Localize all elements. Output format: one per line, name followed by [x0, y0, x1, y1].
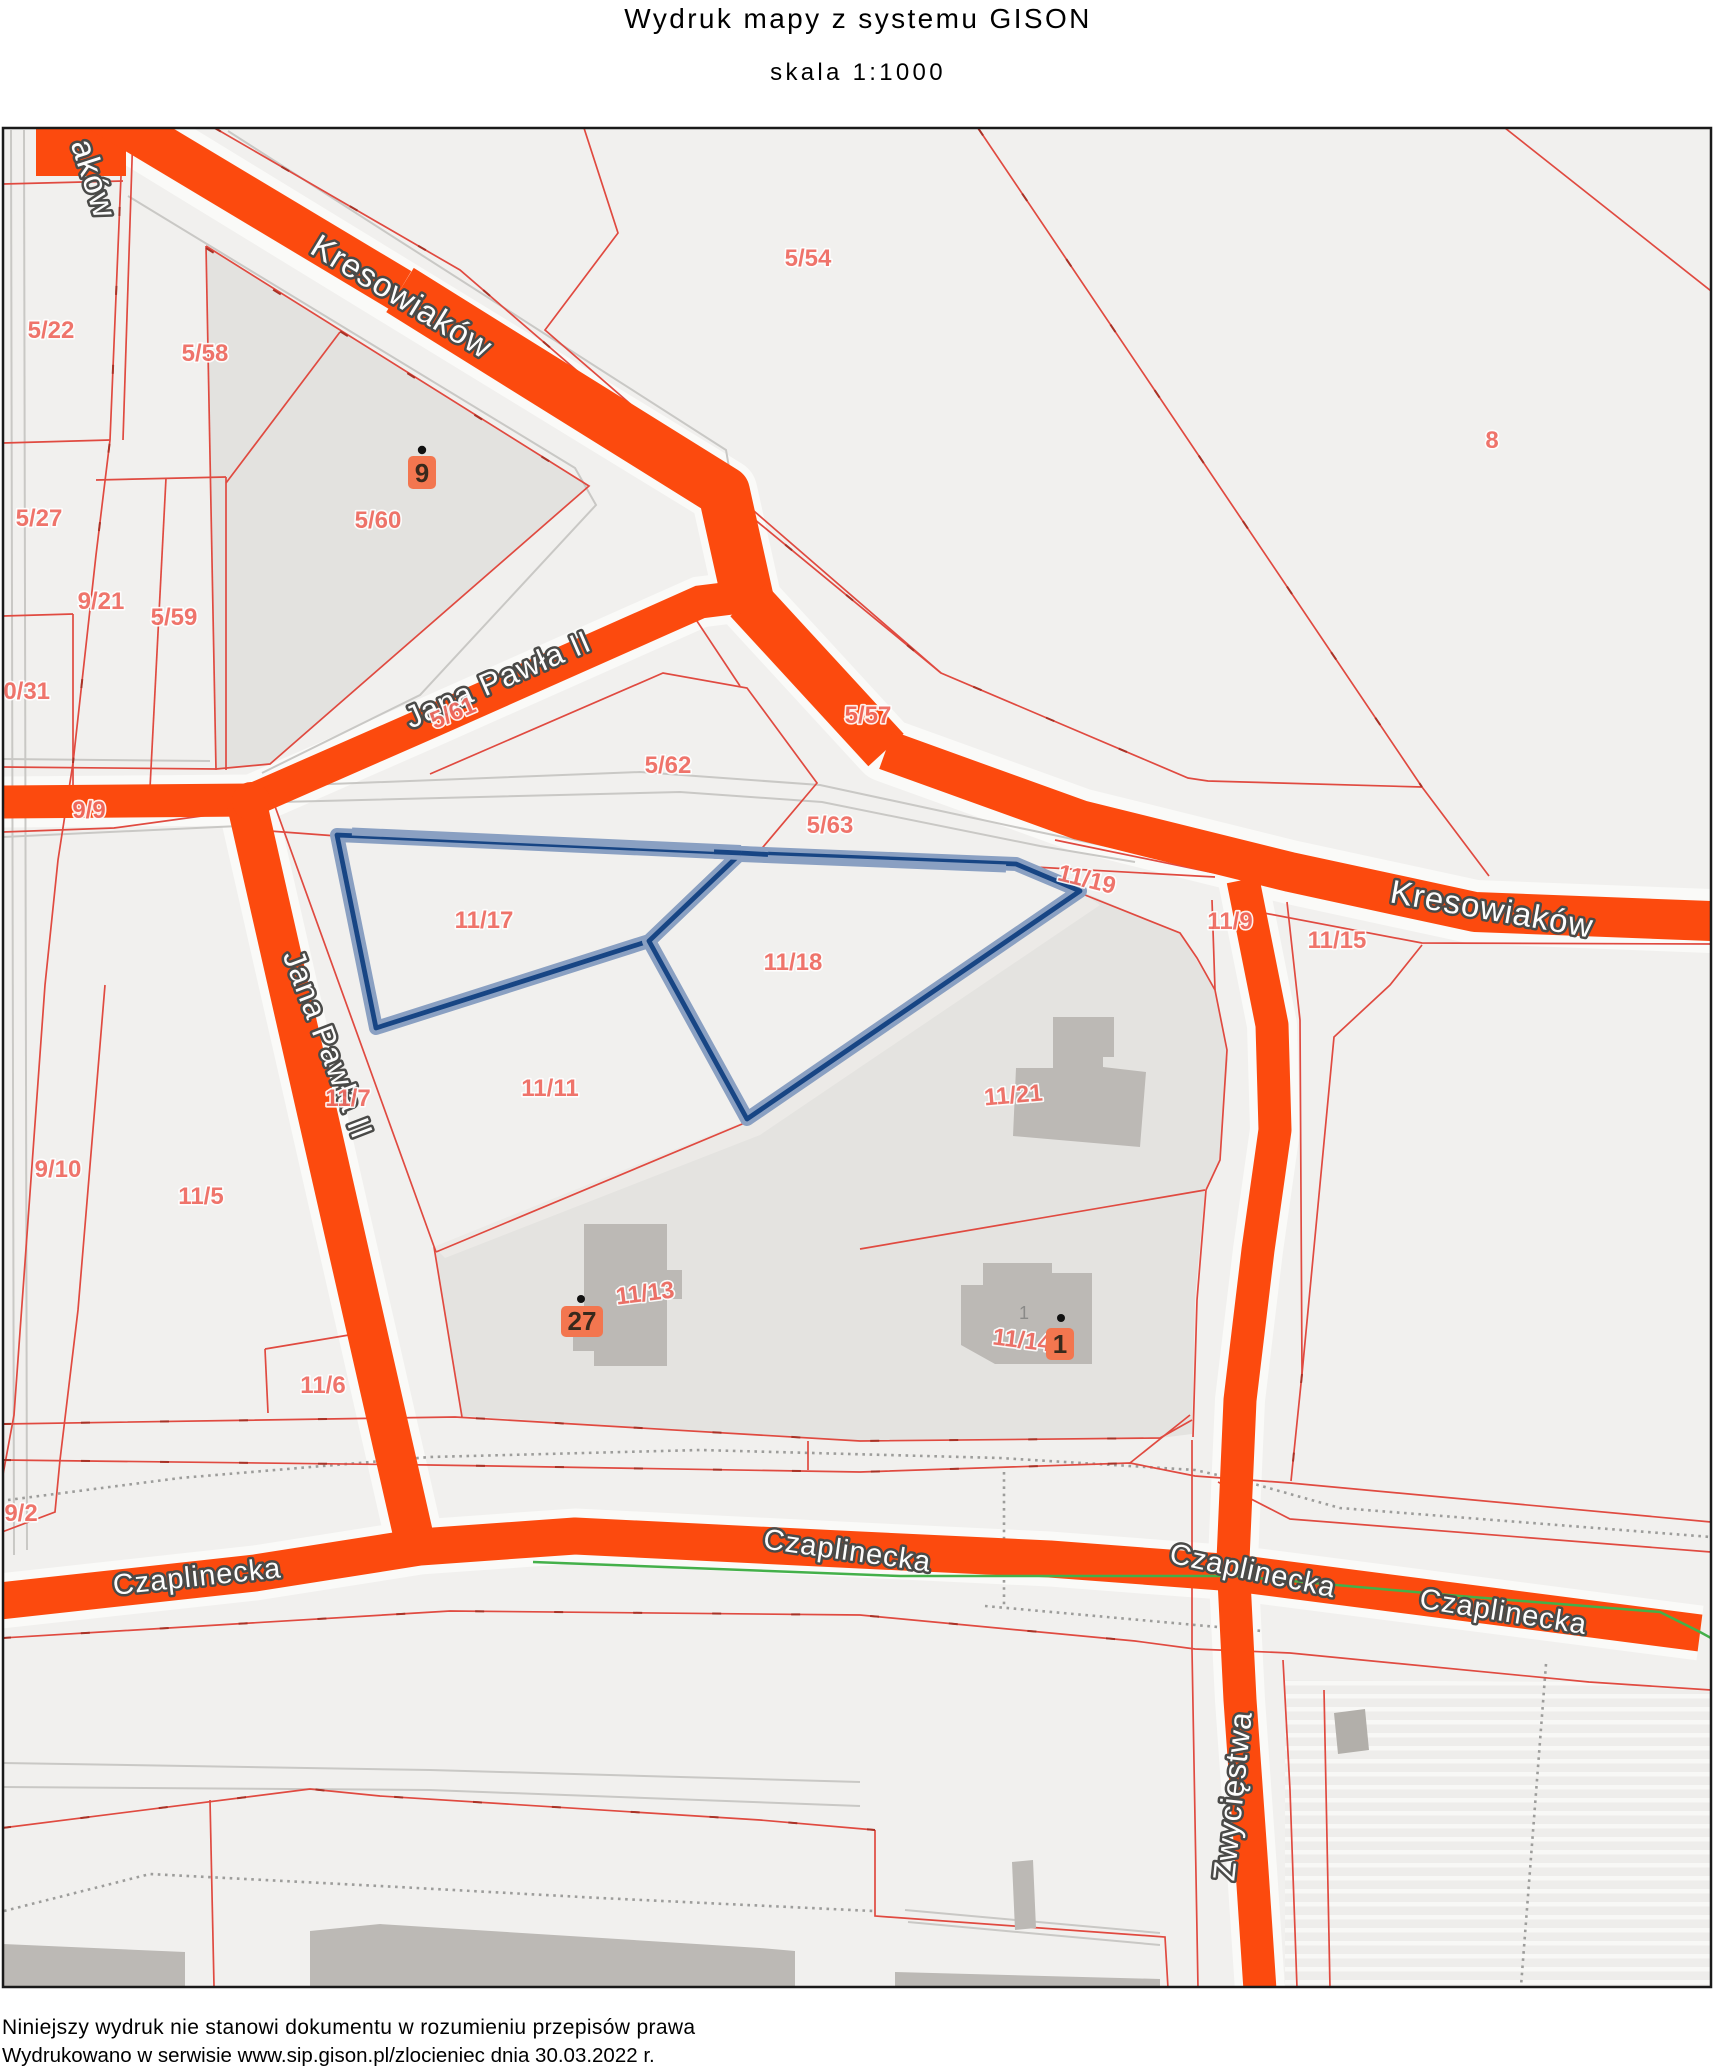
svg-text:9/10: 9/10	[35, 1156, 82, 1183]
svg-text:11/17: 11/17	[455, 907, 514, 934]
svg-text:5/22: 5/22	[28, 317, 75, 344]
svg-text:27: 27	[568, 1306, 597, 1336]
svg-text:11/11: 11/11	[521, 1075, 578, 1102]
svg-text:9/2: 9/2	[4, 1500, 37, 1527]
svg-text:Niniejszy wydruk nie stanowi d: Niniejszy wydruk nie stanowi dokumentu w…	[2, 2016, 695, 2039]
svg-text:5/54: 5/54	[785, 245, 832, 272]
svg-text:5/57: 5/57	[845, 702, 892, 729]
svg-text:9/21: 9/21	[78, 588, 125, 615]
svg-text:10/31: 10/31	[0, 678, 50, 705]
svg-text:5/27: 5/27	[16, 505, 63, 532]
svg-text:11/5: 11/5	[178, 1183, 223, 1210]
svg-text:11/7: 11/7	[325, 1085, 370, 1112]
svg-text:5/58: 5/58	[182, 340, 229, 367]
svg-text:1: 1	[1019, 1303, 1029, 1323]
svg-text:11/18: 11/18	[764, 949, 823, 976]
svg-text:11/15: 11/15	[1308, 927, 1367, 954]
svg-text:skala 1:1000: skala 1:1000	[770, 59, 946, 86]
svg-text:9/9: 9/9	[72, 797, 105, 824]
svg-text:11/21: 11/21	[983, 1080, 1044, 1112]
svg-text:Wydruk mapy z systemu GISON: Wydruk mapy z systemu GISON	[624, 3, 1092, 34]
svg-text:11/6: 11/6	[300, 1372, 345, 1399]
svg-text:5/62: 5/62	[645, 752, 692, 779]
svg-text:Wydrukowano w serwisie www.sip: Wydrukowano w serwisie www.sip.gison.pl/…	[2, 2044, 655, 2066]
svg-text:5/63: 5/63	[807, 812, 854, 839]
svg-text:9: 9	[415, 458, 429, 488]
svg-text:8: 8	[1485, 427, 1498, 454]
svg-text:1: 1	[1053, 1329, 1067, 1359]
svg-text:5/60: 5/60	[355, 507, 402, 534]
svg-text:5/59: 5/59	[151, 604, 198, 631]
svg-text:11/9: 11/9	[1207, 908, 1252, 935]
